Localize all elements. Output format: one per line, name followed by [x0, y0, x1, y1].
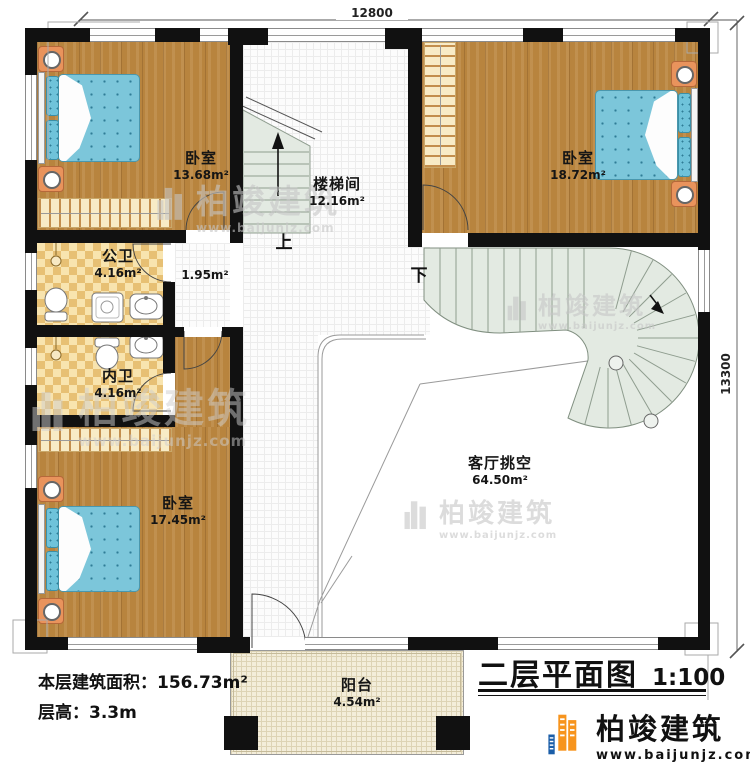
room-area: 4.54m²: [297, 695, 417, 709]
plan-title-scale: 1:100: [652, 665, 725, 691]
room-name: 楼梯间: [277, 176, 397, 194]
wall: [175, 327, 184, 337]
brand-logo-icon: [534, 708, 588, 770]
faucet: [145, 297, 148, 300]
wall: [25, 415, 175, 427]
window: [422, 28, 523, 42]
window: [25, 445, 37, 488]
room-area: 18.72m²: [518, 168, 638, 182]
room-label-living-void: 客厅挑空 64.50m²: [440, 455, 560, 487]
room-area: 13.68m²: [141, 168, 261, 182]
window: [498, 637, 658, 650]
floor-plan-canvas: 柏竣建筑 www.baijunjz.com 柏竣建筑 www.baijunjz.…: [0, 0, 750, 784]
window: [25, 253, 37, 290]
wall: [25, 290, 37, 348]
brand-name: 柏竣建筑: [596, 715, 750, 744]
brand-logo: 柏竣建筑 www.baijunjz.com: [534, 708, 750, 770]
staircase-down: [424, 245, 699, 428]
brand-url: www.baijunjz.com: [596, 748, 750, 763]
stair-newel-post: [644, 414, 658, 428]
room-label-bedroom-top-left: 卧室 13.68m²: [141, 150, 261, 182]
room-area: 12.16m²: [277, 194, 397, 208]
wall-column: [197, 637, 250, 653]
window: [305, 637, 408, 650]
plan-title-text: 二层平面图: [478, 658, 638, 693]
window: [200, 28, 228, 42]
room-name: 卧室: [518, 150, 638, 168]
shower-drain: [101, 301, 113, 313]
wall: [25, 230, 186, 243]
wall: [408, 28, 422, 247]
room-label-corridor: 1.95m²: [165, 268, 245, 282]
wall: [155, 28, 200, 42]
door-bedroom-bottom-left: [184, 331, 222, 369]
balcony-column: [436, 716, 470, 750]
wall: [408, 637, 498, 650]
toilet: [96, 345, 118, 369]
window: [68, 637, 197, 650]
title-underline-thick: [478, 689, 706, 692]
room-name: 公卫: [58, 248, 178, 266]
wall: [698, 312, 710, 650]
wall: [25, 637, 68, 650]
room-area: 64.50m²: [440, 473, 560, 487]
stair-newel-post: [609, 356, 623, 370]
window: [25, 348, 37, 385]
dimension-right: 13300: [719, 345, 733, 403]
light-fixture: [51, 350, 61, 360]
room-name: 阳台: [297, 677, 417, 695]
toilet-tank: [45, 312, 67, 321]
info-area-value: 156.73m²: [157, 673, 248, 693]
info-height-line: 层高：3.3m: [38, 699, 248, 729]
plan-info: 本层建筑面积：156.73m² 层高：3.3m: [38, 669, 248, 729]
room-area: 4.16m²: [58, 386, 178, 400]
wall: [222, 327, 230, 337]
wall: [230, 28, 243, 243]
sink-basin: [135, 298, 157, 314]
wall: [523, 28, 563, 42]
room-label-bedroom-bottom-left: 卧室 17.45m²: [118, 495, 238, 527]
info-area-label: 本层建筑面积：: [38, 673, 157, 693]
room-area: 1.95m²: [165, 268, 245, 282]
wall: [25, 28, 37, 75]
doors: [133, 185, 468, 648]
room-name: 卧室: [118, 495, 238, 513]
door-balcony: [252, 594, 306, 648]
window: [563, 28, 675, 42]
info-height-value: 3.3m: [89, 703, 137, 723]
room-area: 4.16m²: [58, 266, 178, 280]
door-bedroom-top-left: [186, 192, 224, 230]
title-underline-thin: [478, 695, 706, 696]
window: [268, 28, 385, 42]
room-label-balcony: 阳台 4.54m²: [297, 677, 417, 709]
room-area: 17.45m²: [118, 513, 238, 527]
info-area-line: 本层建筑面积：156.73m²: [38, 669, 248, 699]
info-height-label: 层高：: [38, 703, 89, 723]
room-name: 卧室: [141, 150, 261, 168]
wall: [230, 327, 243, 637]
plan-title: 二层平面图1:100: [478, 650, 725, 694]
window: [25, 75, 37, 160]
room-label-stairwell: 楼梯间 12.16m²: [277, 176, 397, 208]
room-label-public-bath: 公卫 4.16m²: [58, 248, 178, 280]
room-name: 内卫: [58, 368, 178, 386]
window: [698, 250, 710, 312]
wall: [25, 488, 37, 650]
toilet: [45, 288, 67, 312]
room-name: 客厅挑空: [440, 455, 560, 473]
wall: [468, 233, 698, 247]
dimension-top: 12800: [336, 6, 408, 20]
door-bedroom-top-right: [423, 185, 468, 230]
stair-direction-down: 下: [404, 261, 434, 286]
stair-direction-up: 上: [269, 228, 299, 253]
window: [90, 28, 155, 42]
room-label-bedroom-top-right: 卧室 18.72m²: [518, 150, 638, 182]
wall: [25, 325, 175, 337]
wall: [658, 637, 710, 650]
wall: [698, 28, 710, 250]
room-label-ensuite-bath: 内卫 4.16m²: [58, 368, 178, 400]
